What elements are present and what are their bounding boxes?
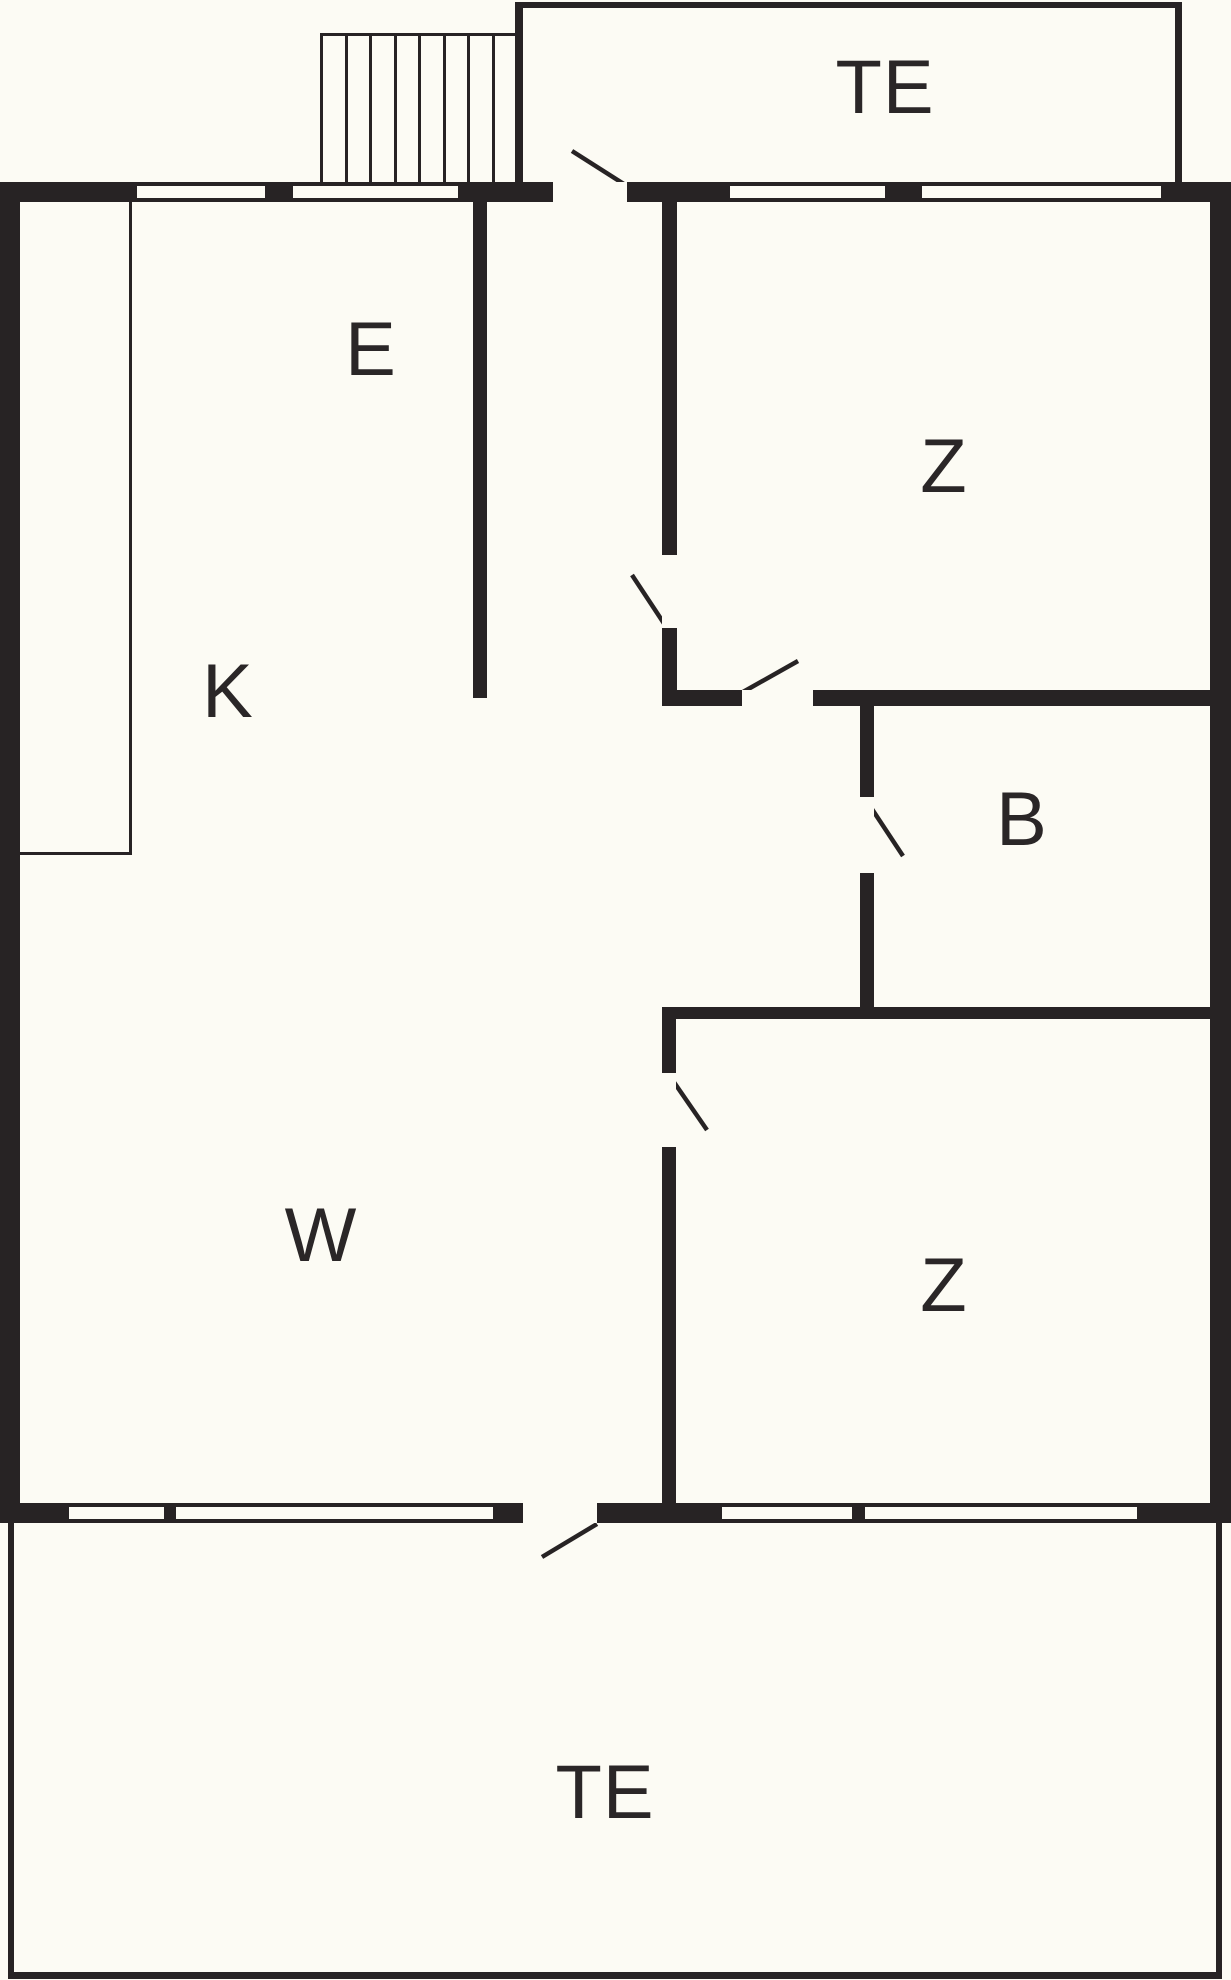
door-swing-entrance-top: [572, 151, 627, 186]
window-bottom-4: [865, 1503, 1137, 1523]
stairs-tread-line: [369, 33, 372, 182]
stairs-tread-line: [418, 33, 421, 182]
floor-plan: TE E Z K B W Z TE: [0, 0, 1231, 1980]
stairs-tread-line: [394, 33, 397, 182]
door-opening-bathroom: [860, 797, 874, 873]
terrace-bottom-wall-bottom: [8, 1972, 1222, 1979]
room-label-terrace-bottom: TE: [555, 1755, 654, 1831]
window-bottom-1: [69, 1503, 164, 1523]
terrace-bottom-wall-right: [1216, 1523, 1222, 1979]
stairs-tread-line: [345, 33, 348, 182]
room-label-bedroom-top: Z: [920, 429, 967, 505]
wall-hall-z-top: [662, 202, 677, 706]
wall-hall-z-bottom: [662, 1007, 1210, 1019]
door-swing-terrace: [542, 1524, 597, 1557]
terrace-top-wall-left: [515, 2, 523, 182]
outer-wall-right: [1210, 182, 1231, 1523]
window-bottom-2: [176, 1503, 493, 1523]
window-top-1: [137, 182, 265, 202]
terrace-top-wall-top: [515, 2, 1182, 8]
room-label-bedroom-bottom: Z: [920, 1248, 967, 1324]
room-label-terrace-top: TE: [835, 50, 934, 126]
window-top-3: [730, 182, 885, 202]
door-swing-lines: [0, 0, 1231, 1980]
wall-e-hall: [473, 202, 487, 698]
terrace-top-wall-right: [1175, 2, 1182, 182]
door-opening-terrace: [523, 1503, 597, 1523]
stairs-tread-line: [443, 33, 446, 182]
terrace-bottom-wall-left: [8, 1523, 14, 1979]
door-swing-z-top-closet: [743, 661, 798, 692]
door-opening-entrance-top: [553, 182, 627, 202]
window-top-4: [922, 182, 1161, 202]
stairs-tread-line: [320, 33, 323, 182]
door-opening-z-top-closet: [742, 690, 813, 706]
window-bottom-3: [722, 1503, 852, 1523]
stairs-tread-line: [492, 33, 495, 182]
room-label-kitchen: K: [202, 654, 254, 730]
counter-line-vertical: [129, 202, 132, 855]
room-label-entrance: E: [345, 312, 397, 388]
door-opening-w-z-bottom: [662, 1073, 676, 1147]
stairs-tread-line: [467, 33, 470, 182]
outer-wall-left: [0, 182, 20, 1523]
counter-line-horizontal: [20, 852, 132, 855]
window-top-2: [293, 182, 458, 202]
room-label-bathroom: B: [996, 782, 1048, 858]
room-label-living-room: W: [285, 1198, 358, 1274]
door-opening-hall-z-top: [662, 555, 677, 628]
